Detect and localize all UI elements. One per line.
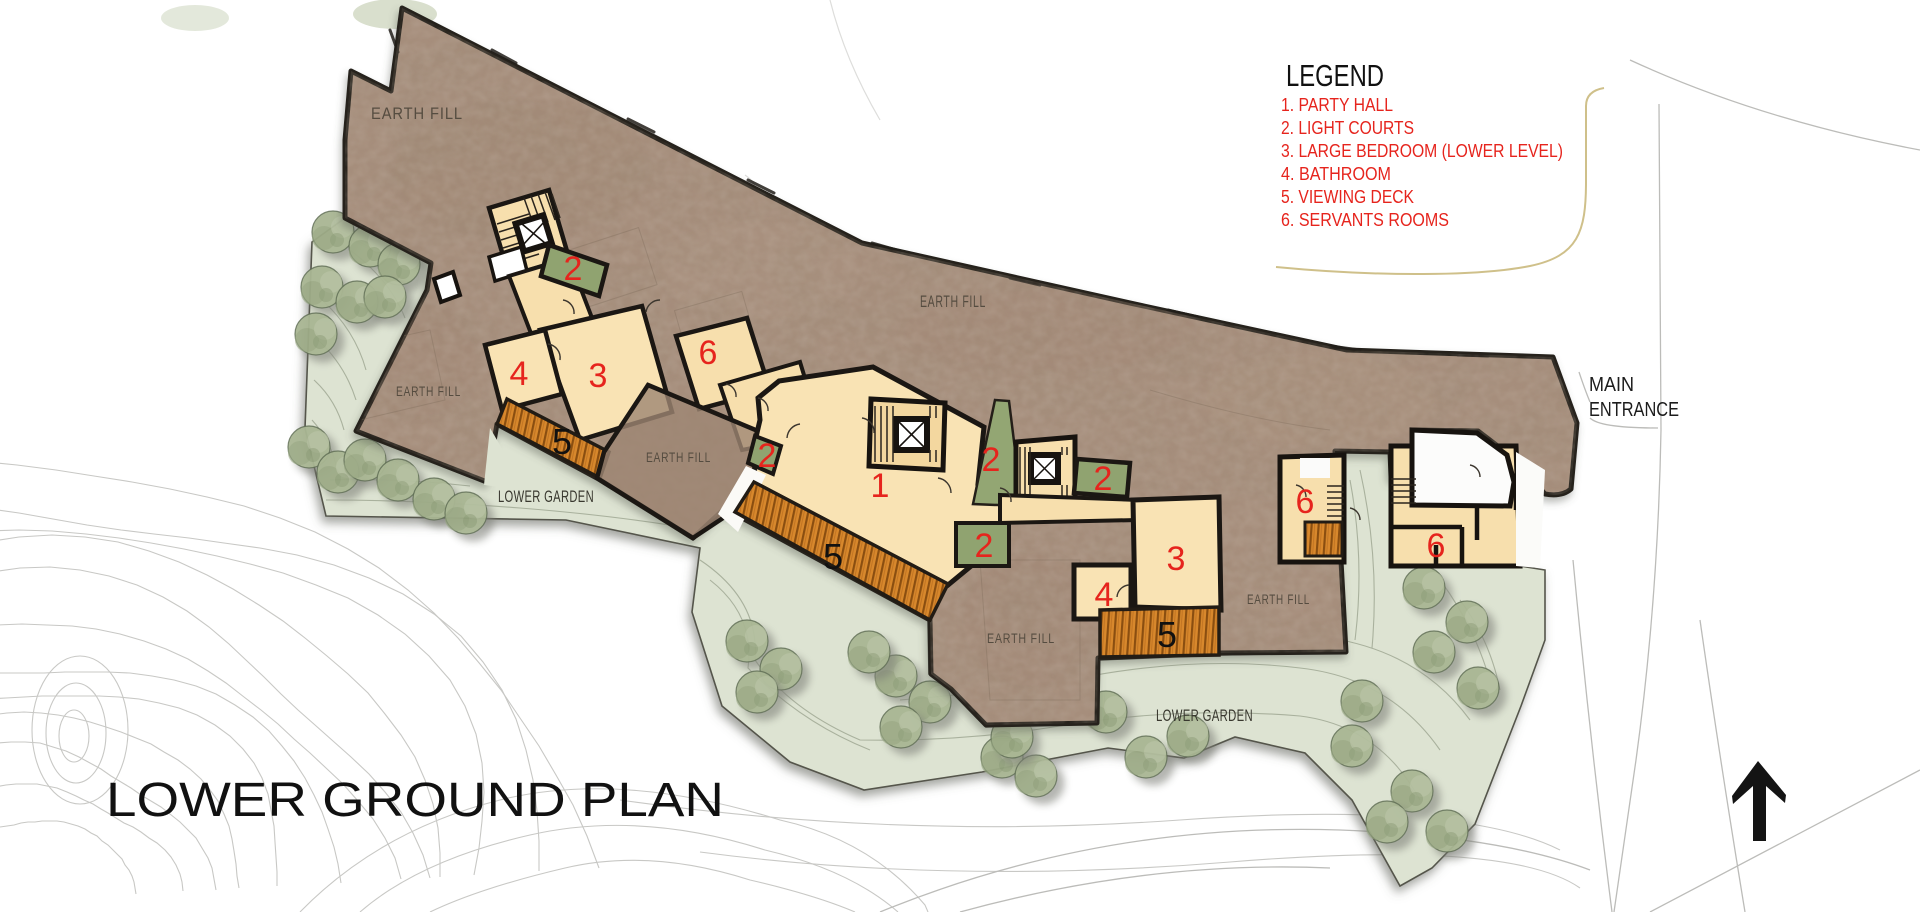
svg-text:3: 3 (589, 357, 608, 395)
svg-text:1. PARTY HALL: 1. PARTY HALL (1281, 94, 1393, 115)
svg-text:5. VIEWING DECK: 5. VIEWING DECK (1281, 186, 1415, 207)
svg-text:1: 1 (871, 467, 890, 505)
svg-text:EARTH FILL: EARTH FILL (920, 293, 986, 311)
svg-text:6: 6 (1296, 483, 1315, 521)
svg-text:6: 6 (1427, 527, 1446, 565)
svg-text:4: 4 (1095, 576, 1114, 614)
svg-text:5: 5 (552, 421, 572, 462)
svg-text:6: 6 (699, 334, 718, 372)
svg-text:EARTH FILL: EARTH FILL (396, 383, 461, 399)
svg-text:4: 4 (510, 355, 529, 393)
svg-text:2: 2 (758, 437, 777, 475)
svg-text:ENTRANCE: ENTRANCE (1589, 399, 1679, 421)
svg-text:LEGEND: LEGEND (1286, 58, 1384, 93)
svg-text:MAIN: MAIN (1589, 374, 1634, 396)
svg-text:EARTH FILL: EARTH FILL (371, 105, 463, 123)
svg-text:5: 5 (823, 536, 843, 577)
svg-text:6. SERVANTS ROOMS: 6. SERVANTS ROOMS (1281, 209, 1449, 230)
svg-text:EARTH FILL: EARTH FILL (987, 630, 1055, 646)
svg-text:LOWER GARDEN: LOWER GARDEN (1156, 707, 1253, 725)
svg-text:EARTH FILL: EARTH FILL (1247, 591, 1310, 607)
svg-text:4. BATHROOM: 4. BATHROOM (1281, 163, 1391, 184)
svg-text:2: 2 (1094, 460, 1113, 498)
svg-text:2. LIGHT COURTS: 2. LIGHT COURTS (1281, 117, 1414, 138)
svg-text:EARTH FILL: EARTH FILL (646, 449, 711, 465)
svg-text:3. LARGE BEDROOM (LOWER LEVEL): 3. LARGE BEDROOM (LOWER LEVEL) (1281, 140, 1563, 161)
svg-text:3: 3 (1167, 540, 1186, 578)
svg-text:2: 2 (982, 441, 1001, 479)
svg-text:5: 5 (1157, 614, 1177, 655)
svg-text:LOWER GROUND PLAN: LOWER GROUND PLAN (106, 774, 724, 827)
svg-text:2: 2 (975, 527, 994, 565)
svg-text:LOWER GARDEN: LOWER GARDEN (498, 488, 594, 506)
svg-text:2: 2 (564, 250, 583, 288)
